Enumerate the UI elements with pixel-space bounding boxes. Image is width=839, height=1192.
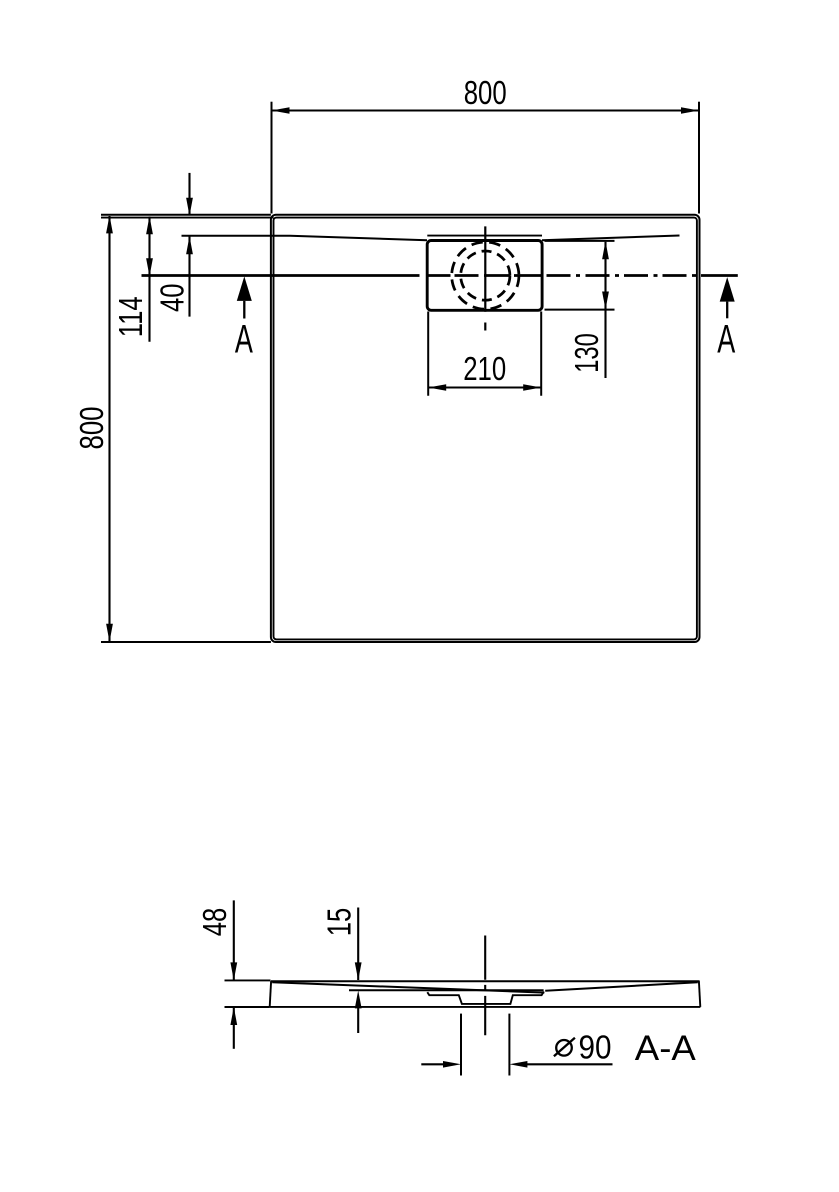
svg-text:90: 90 [579,1029,612,1066]
svg-text:15: 15 [321,908,358,937]
svg-text:A: A [717,317,735,361]
svg-text:800: 800 [464,74,507,111]
svg-text:A: A [235,317,253,361]
svg-text:A-A: A-A [635,1029,697,1068]
svg-text:130: 130 [568,333,605,373]
svg-text:114: 114 [112,296,149,337]
svg-text:48: 48 [196,908,233,937]
svg-text:40: 40 [153,284,190,313]
svg-text:800: 800 [73,407,110,450]
svg-text:210: 210 [463,350,506,387]
